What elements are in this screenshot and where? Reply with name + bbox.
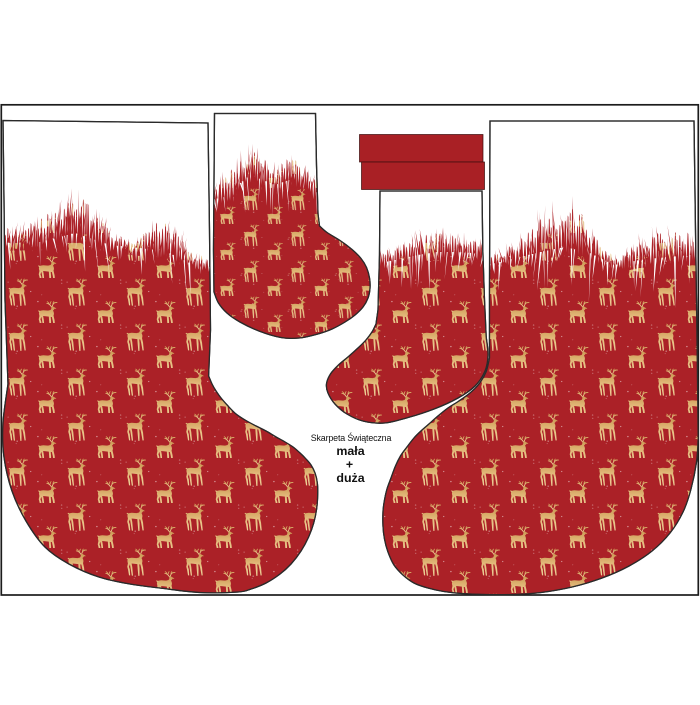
svg-text:duża: duża (336, 471, 364, 485)
svg-text:+: + (346, 458, 353, 472)
svg-text:mała: mała (336, 444, 364, 458)
svg-text:Skarpeta Świąteczna: Skarpeta Świąteczna (311, 432, 392, 443)
